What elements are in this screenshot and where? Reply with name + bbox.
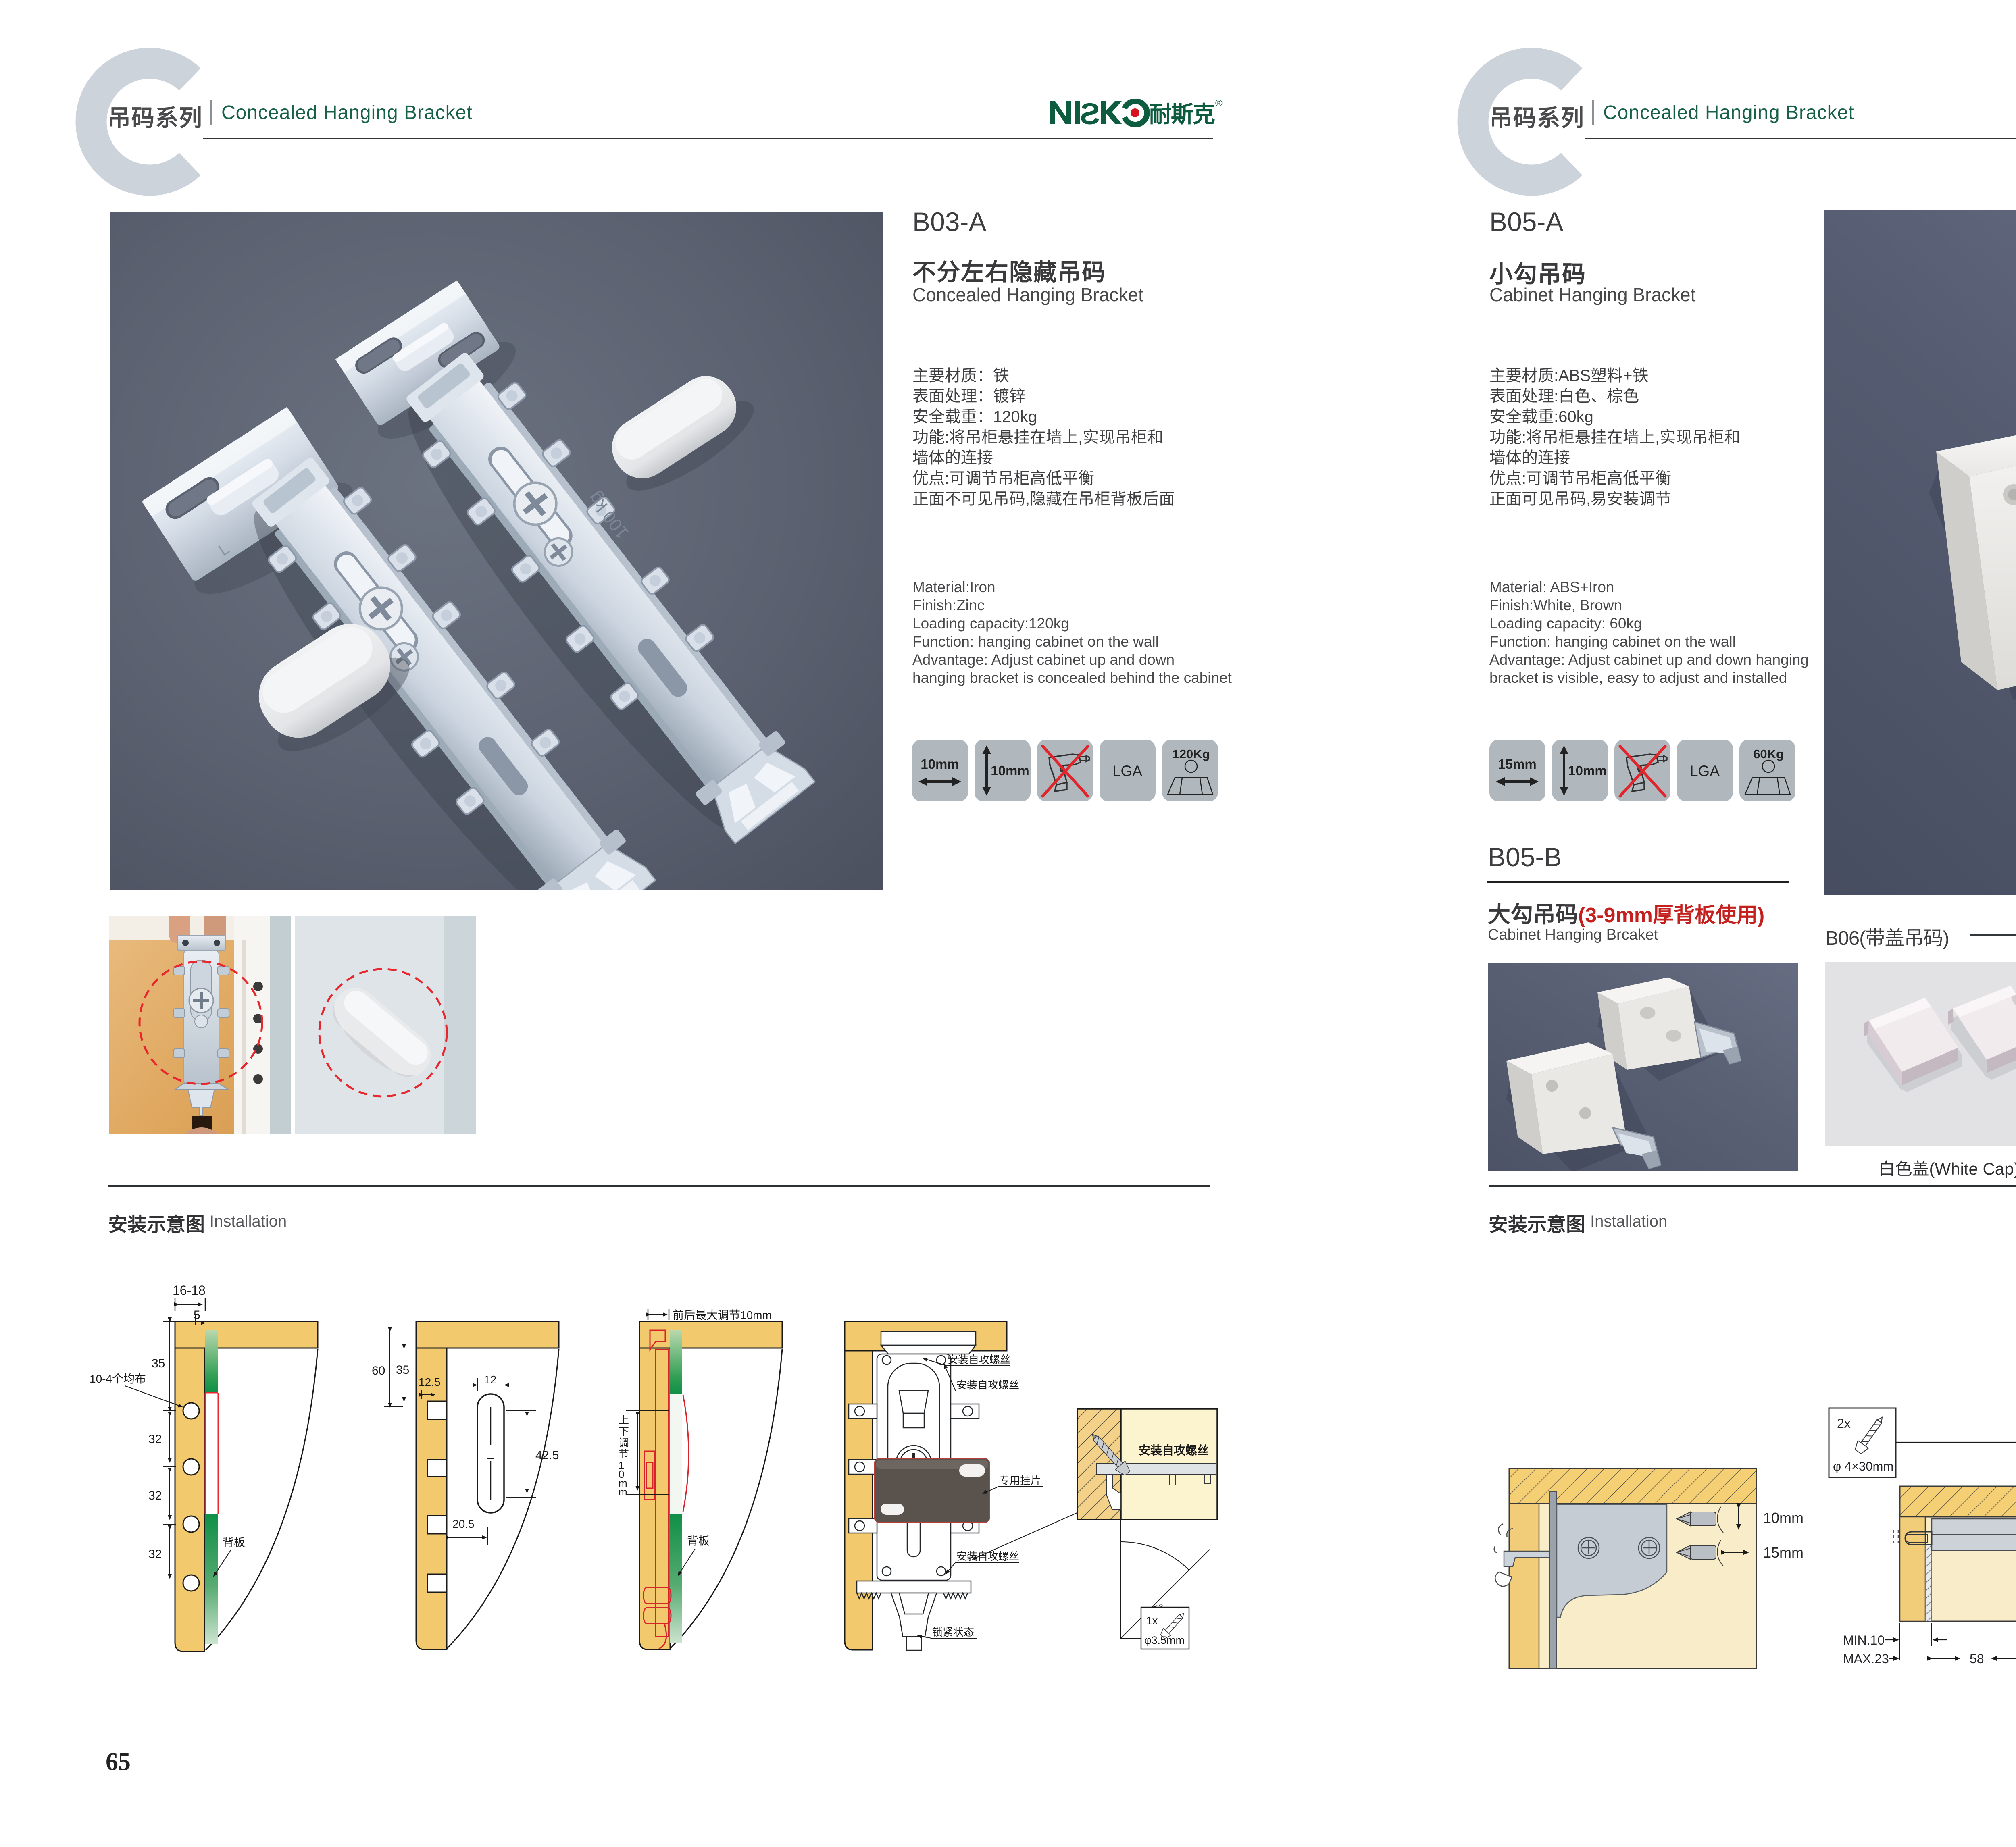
svg-text:φ 4×30mm: φ 4×30mm [1833,1459,1893,1473]
svg-text:上下调节10mm: 上下调节10mm [619,1414,629,1498]
svg-text:背板: 背板 [223,1536,245,1549]
svg-text:LGA: LGA [1112,763,1142,779]
svg-text:MIN.10: MIN.10 [1843,1633,1885,1647]
svg-text:10-4个均布: 10-4个均布 [90,1373,146,1385]
svg-text:安装自攻螺丝: 安装自攻螺丝 [956,1379,1019,1391]
svg-text:10mm: 10mm [921,757,959,772]
svg-text:58: 58 [1970,1651,1984,1666]
svg-text:16-18: 16-18 [173,1283,206,1298]
svg-text:安装自攻螺丝: 安装自攻螺丝 [948,1354,1010,1366]
svg-text:安装自攻螺丝: 安装自攻螺丝 [1139,1444,1209,1457]
svg-text:15mm: 15mm [1498,757,1536,772]
svg-text:10mm: 10mm [1568,763,1606,778]
svg-text:32: 32 [148,1547,162,1561]
svg-text:12.5: 12.5 [419,1376,441,1388]
svg-text:10mm: 10mm [1763,1510,1804,1526]
svg-text:60: 60 [372,1364,385,1377]
svg-text:φ3.5mm: φ3.5mm [1144,1634,1185,1646]
svg-text:60Kg: 60Kg [1753,747,1784,761]
svg-text:35: 35 [152,1357,165,1370]
svg-text:32: 32 [148,1433,162,1446]
svg-text:背板: 背板 [687,1535,710,1547]
svg-text:15mm: 15mm [1763,1544,1804,1561]
svg-text:42.5: 42.5 [535,1449,559,1462]
svg-text:5: 5 [194,1308,200,1322]
svg-text:®: ® [1215,99,1223,109]
svg-text:1x: 1x [1146,1614,1158,1627]
svg-text:锁紧状态: 锁紧状态 [932,1626,974,1638]
svg-text:前后最大调节10mm: 前后最大调节10mm [673,1309,772,1321]
svg-text:120Kg: 120Kg [1172,747,1210,761]
svg-text:20.5: 20.5 [452,1518,475,1530]
svg-text:S: S [1080,99,1100,131]
svg-text:MAX.23: MAX.23 [1843,1651,1889,1666]
svg-text:专用挂片: 专用挂片 [999,1475,1041,1487]
svg-text:32: 32 [148,1489,162,1502]
svg-text:耐斯克: 耐斯克 [1149,102,1215,127]
svg-text:LGA: LGA [1690,763,1720,779]
svg-text:10mm: 10mm [991,763,1029,778]
svg-text:35: 35 [396,1363,409,1377]
svg-text:2x: 2x [1837,1416,1851,1431]
svg-text:12: 12 [484,1373,496,1386]
